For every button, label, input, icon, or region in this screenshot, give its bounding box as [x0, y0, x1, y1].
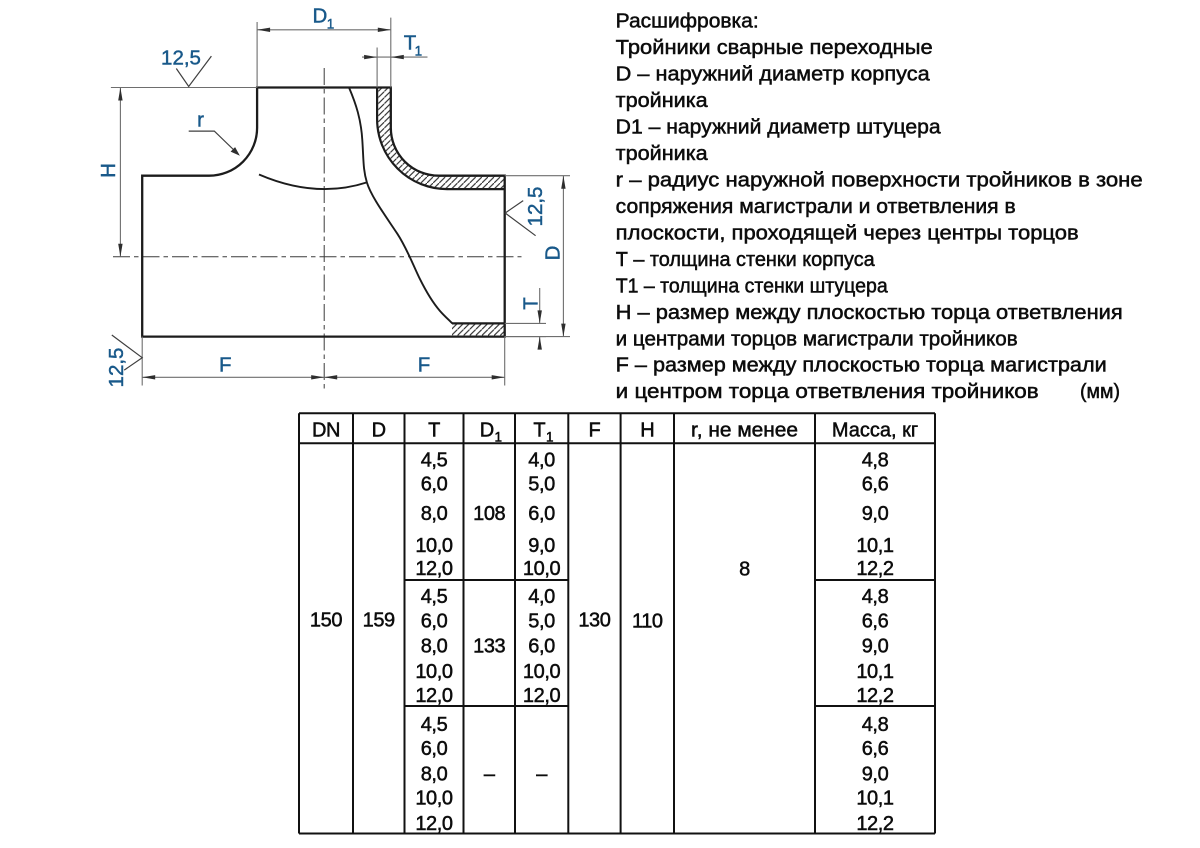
svg-text:8: 8	[739, 558, 750, 580]
svg-text:9,0: 9,0	[862, 503, 889, 525]
svg-text:T: T	[428, 419, 440, 441]
svg-text:–: –	[484, 764, 496, 786]
svg-text:6,6: 6,6	[862, 738, 889, 760]
svg-text:1: 1	[327, 17, 335, 32]
svg-text:плоскости, проходящей через це: плоскости, проходящей через центры торцо…	[616, 222, 1079, 244]
svg-text:8,0: 8,0	[421, 764, 448, 786]
svg-text:12,2: 12,2	[856, 813, 894, 835]
svg-text:Расшифровка:: Расшифровка:	[616, 11, 759, 33]
svg-text:4,5: 4,5	[421, 586, 448, 608]
svg-text:130: 130	[578, 610, 610, 632]
svg-text:4,8: 4,8	[862, 586, 889, 608]
svg-text:Т – толщина стенки корпуса: Т – толщина стенки корпуса	[616, 249, 876, 271]
svg-text:12,0: 12,0	[415, 813, 453, 835]
svg-text:и центрами торцов магистрали т: и центрами торцов магистрали тройников	[616, 328, 1018, 350]
svg-text:1: 1	[546, 429, 554, 444]
svg-text:108: 108	[473, 503, 505, 525]
svg-text:T: T	[533, 419, 545, 441]
svg-text:6,0: 6,0	[421, 473, 448, 495]
svg-text:8,0: 8,0	[421, 503, 448, 525]
svg-text:r: r	[197, 109, 204, 132]
svg-text:9,0: 9,0	[528, 535, 555, 557]
svg-text:10,1: 10,1	[856, 661, 894, 683]
svg-text:8,0: 8,0	[421, 635, 448, 657]
svg-text:12,5: 12,5	[524, 187, 547, 227]
svg-text:4,5: 4,5	[421, 714, 448, 736]
svg-text:10,1: 10,1	[856, 535, 894, 557]
svg-text:10,0: 10,0	[415, 788, 453, 810]
svg-text:D: D	[480, 419, 494, 441]
svg-text:и центром торца ответвления тр: и центром торца ответвления тройников	[616, 381, 1039, 403]
svg-text:10,0: 10,0	[523, 558, 561, 580]
svg-text:6,0: 6,0	[421, 738, 448, 760]
svg-text:D – наружний диаметр корпуса: D – наружний диаметр корпуса	[616, 64, 931, 86]
svg-text:159: 159	[363, 610, 395, 632]
svg-text:6,6: 6,6	[862, 611, 889, 633]
svg-text:H: H	[97, 163, 120, 178]
svg-text:T: T	[520, 297, 543, 310]
svg-text:Тройники сварные переходные: Тройники сварные переходные	[616, 37, 933, 59]
svg-text:сопряжения магистрали и ответв: сопряжения магистрали и ответвления в	[616, 196, 1016, 218]
svg-text:(мм): (мм)	[1080, 381, 1120, 403]
svg-text:4,8: 4,8	[862, 449, 889, 471]
svg-text:4,8: 4,8	[862, 714, 889, 736]
svg-text:6,6: 6,6	[862, 473, 889, 495]
svg-text:9,0: 9,0	[862, 635, 889, 657]
svg-text:9,0: 9,0	[862, 764, 889, 786]
svg-text:12,5: 12,5	[105, 348, 128, 388]
svg-text:10,1: 10,1	[856, 788, 894, 810]
svg-text:4,0: 4,0	[528, 586, 555, 608]
svg-text:10,0: 10,0	[523, 661, 561, 683]
svg-text:r, не менее: r, не менее	[691, 419, 798, 441]
svg-text:F – размер между плоскостью то: F – размер между плоскостью торца магист…	[616, 355, 1107, 377]
svg-text:Т1 – толщина стенки штуцера: Т1 – толщина стенки штуцера	[616, 275, 889, 297]
svg-text:1: 1	[415, 44, 423, 59]
svg-text:6,0: 6,0	[528, 635, 555, 657]
svg-text:Н – размер между плоскостью то: Н – размер между плоскостью торца ответв…	[616, 302, 1123, 324]
svg-text:12,5: 12,5	[161, 47, 201, 70]
svg-text:тройника: тройника	[616, 143, 709, 165]
svg-text:H: H	[640, 419, 654, 441]
svg-text:5,0: 5,0	[528, 473, 555, 495]
svg-text:12,0: 12,0	[415, 558, 453, 580]
svg-text:тройника: тройника	[616, 90, 709, 112]
svg-text:12,2: 12,2	[856, 558, 894, 580]
svg-text:D1 – наружний диаметр штуцера: D1 – наружний диаметр штуцера	[616, 116, 942, 138]
svg-text:12,0: 12,0	[415, 685, 453, 707]
svg-text:DN: DN	[312, 419, 340, 441]
svg-text:D: D	[313, 5, 328, 28]
svg-text:5,0: 5,0	[528, 611, 555, 633]
svg-text:133: 133	[473, 635, 505, 657]
svg-text:Масса, кг: Масса, кг	[832, 419, 918, 441]
svg-text:1: 1	[495, 429, 503, 444]
svg-text:110: 110	[632, 611, 663, 633]
svg-text:6,0: 6,0	[528, 503, 555, 525]
svg-text:12,2: 12,2	[856, 685, 894, 707]
svg-text:4,0: 4,0	[528, 449, 555, 471]
svg-text:10,0: 10,0	[415, 661, 453, 683]
svg-text:12,0: 12,0	[523, 685, 561, 707]
svg-text:150: 150	[310, 610, 342, 632]
svg-text:F: F	[219, 354, 232, 377]
svg-text:D: D	[542, 246, 565, 261]
svg-text:4,5: 4,5	[421, 449, 448, 471]
svg-text:r – радиус наружной поверхност: r – радиус наружной поверхности тройнико…	[616, 169, 1143, 191]
svg-text:F: F	[418, 354, 431, 377]
svg-text:F: F	[588, 419, 600, 441]
svg-text:–: –	[536, 764, 548, 786]
svg-text:6,0: 6,0	[421, 611, 448, 633]
svg-text:D: D	[372, 419, 386, 441]
svg-text:10,0: 10,0	[415, 535, 453, 557]
